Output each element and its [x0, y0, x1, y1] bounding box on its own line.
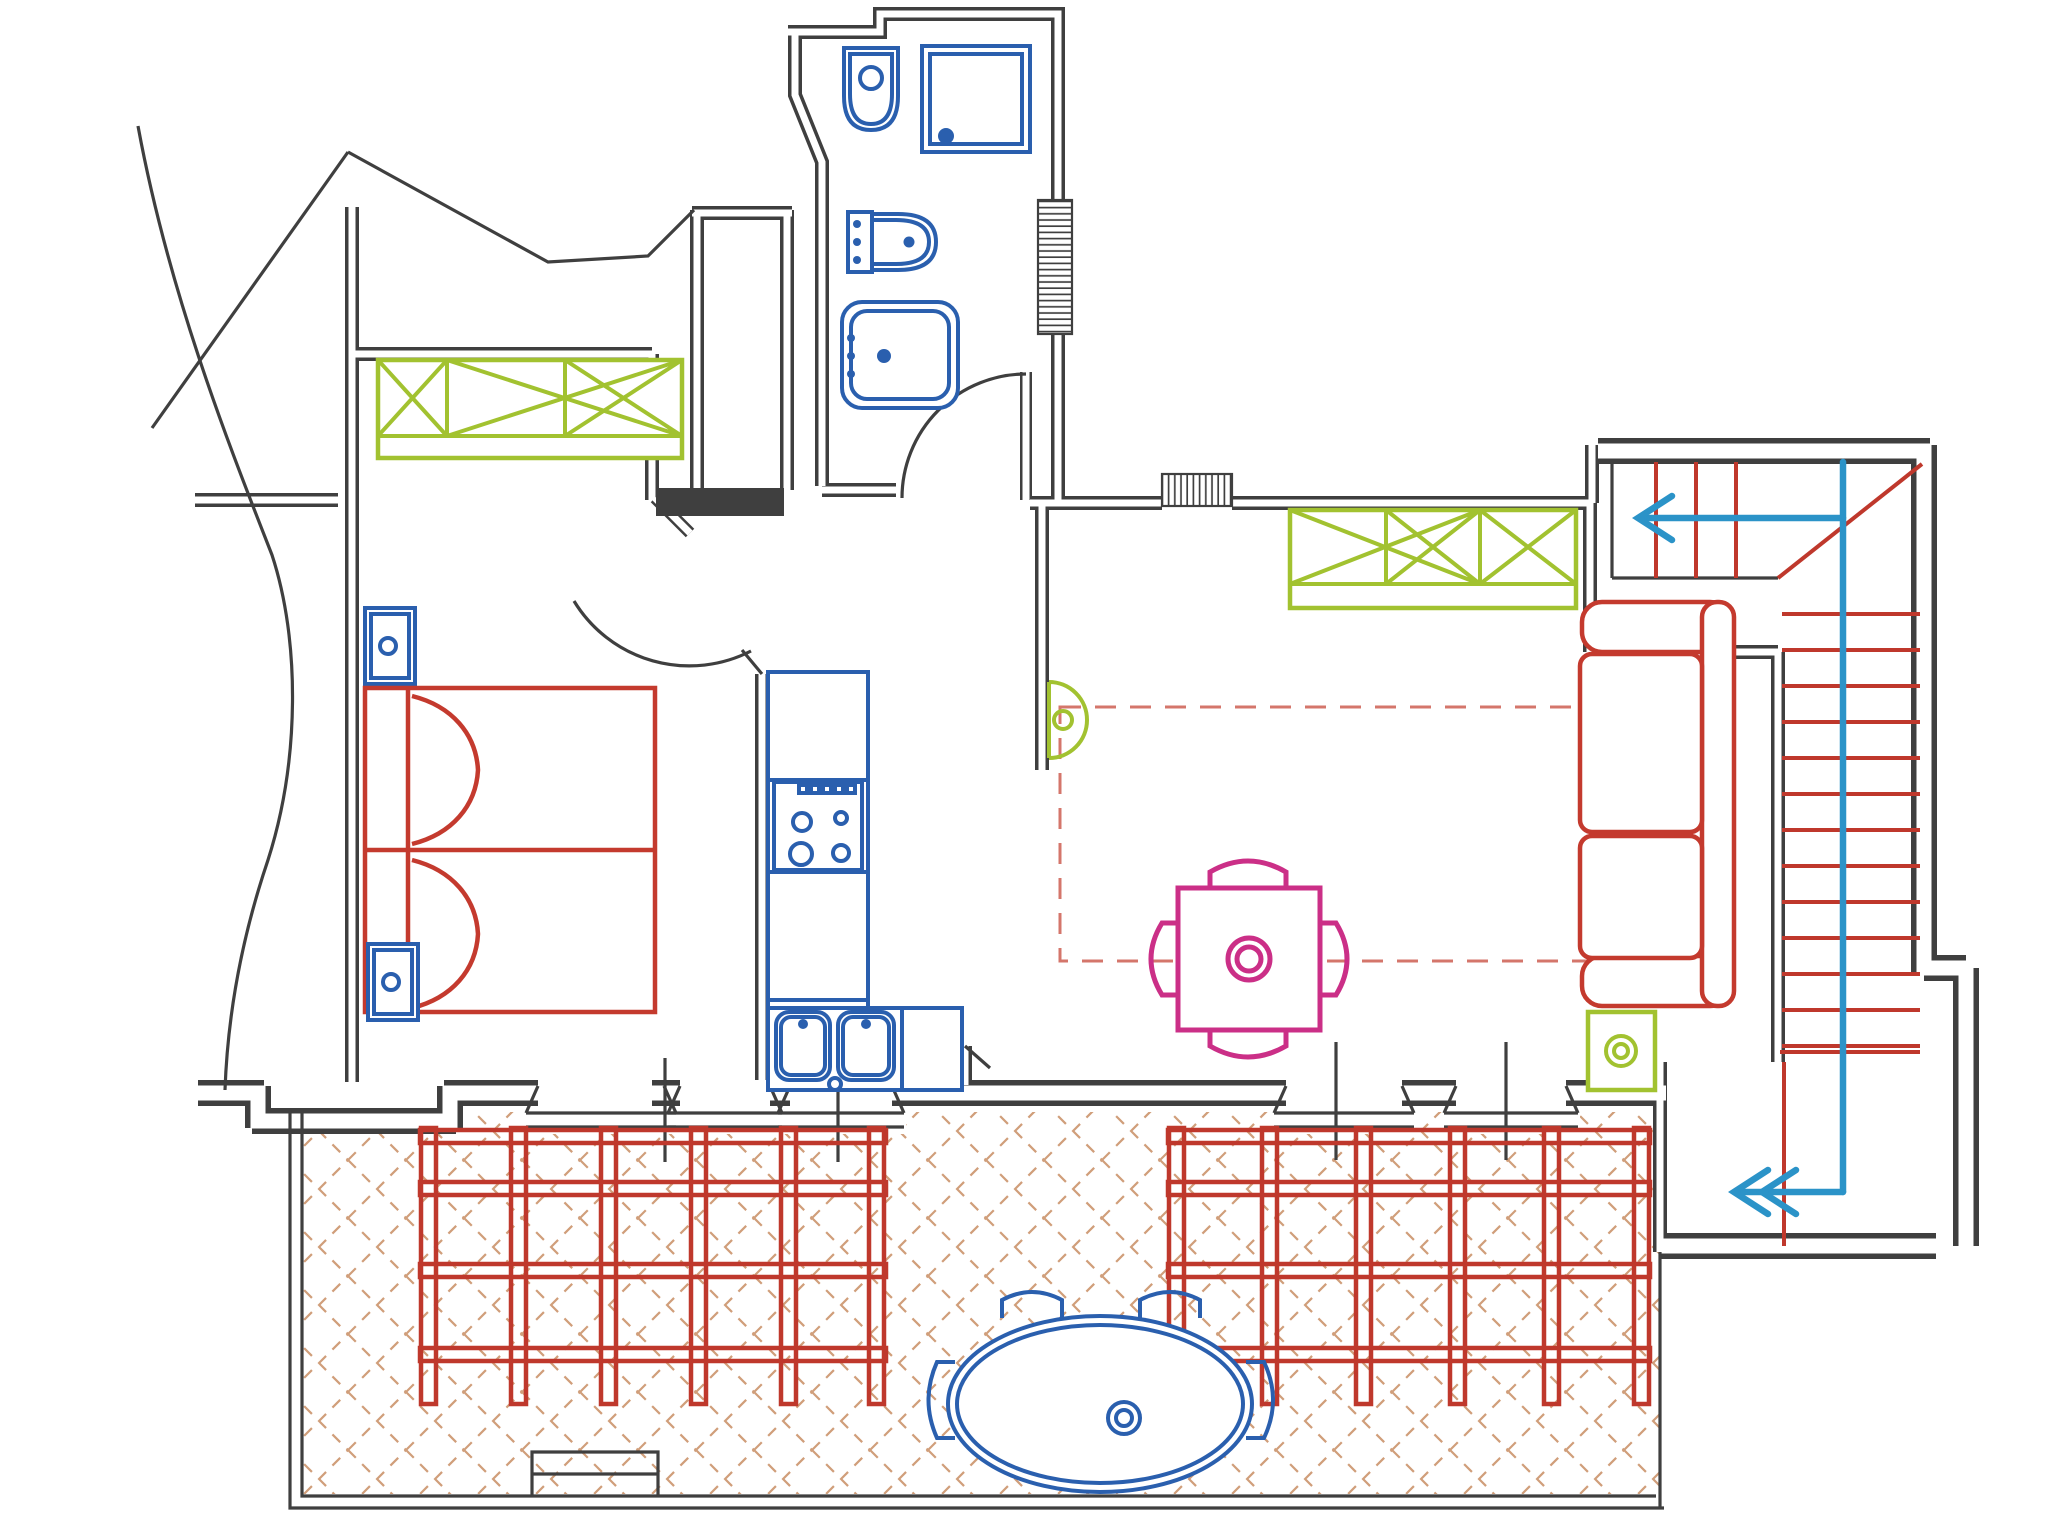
- living-wall-vent-hatch: [1162, 474, 1232, 506]
- stair-vestibule-lines: [1780, 1052, 1920, 1246]
- bathroom: [842, 46, 1030, 408]
- site-diagonal: [152, 152, 348, 428]
- washbasin: [842, 302, 958, 408]
- living-dining: [1151, 510, 1734, 1090]
- nightstand: [365, 608, 415, 684]
- bedroom: [365, 360, 682, 1020]
- green-side-table: [1588, 1012, 1655, 1090]
- chair: [1210, 861, 1286, 886]
- duct-solid-wall: [656, 488, 784, 516]
- nightstand: [368, 944, 418, 1020]
- sofa: [1580, 602, 1734, 1006]
- floor-plan: [0, 0, 2048, 1536]
- sofa-cushion: [1580, 654, 1702, 832]
- kitchen-counter-vertical: [768, 672, 868, 1008]
- stair-lower-treads: [1782, 614, 1920, 1046]
- wall-hung-basin: [1049, 682, 1087, 758]
- sofa-backrest: [1702, 602, 1734, 1006]
- living-wardrobe: [1290, 510, 1576, 608]
- entrance-arrow-icon: [1734, 1170, 1843, 1214]
- bathroom-window-hatch: [1038, 200, 1072, 334]
- floor-plan-sheet: [0, 0, 2048, 1536]
- site-curve: [138, 126, 293, 1090]
- stair-up-arrow-icon: [1638, 496, 1843, 540]
- bedroom-wardrobe: [378, 360, 682, 458]
- chair: [1322, 923, 1347, 995]
- bedroom-door-arc: [574, 601, 751, 666]
- shower: [922, 46, 1030, 152]
- bidet: [848, 212, 936, 272]
- chair: [1210, 1032, 1286, 1057]
- chair: [1151, 923, 1176, 995]
- sofa-cushion: [1580, 836, 1702, 958]
- dining-table: [1151, 861, 1347, 1057]
- oval-table: [948, 1316, 1252, 1492]
- site-roofline: [348, 152, 694, 262]
- toilet: [844, 48, 898, 130]
